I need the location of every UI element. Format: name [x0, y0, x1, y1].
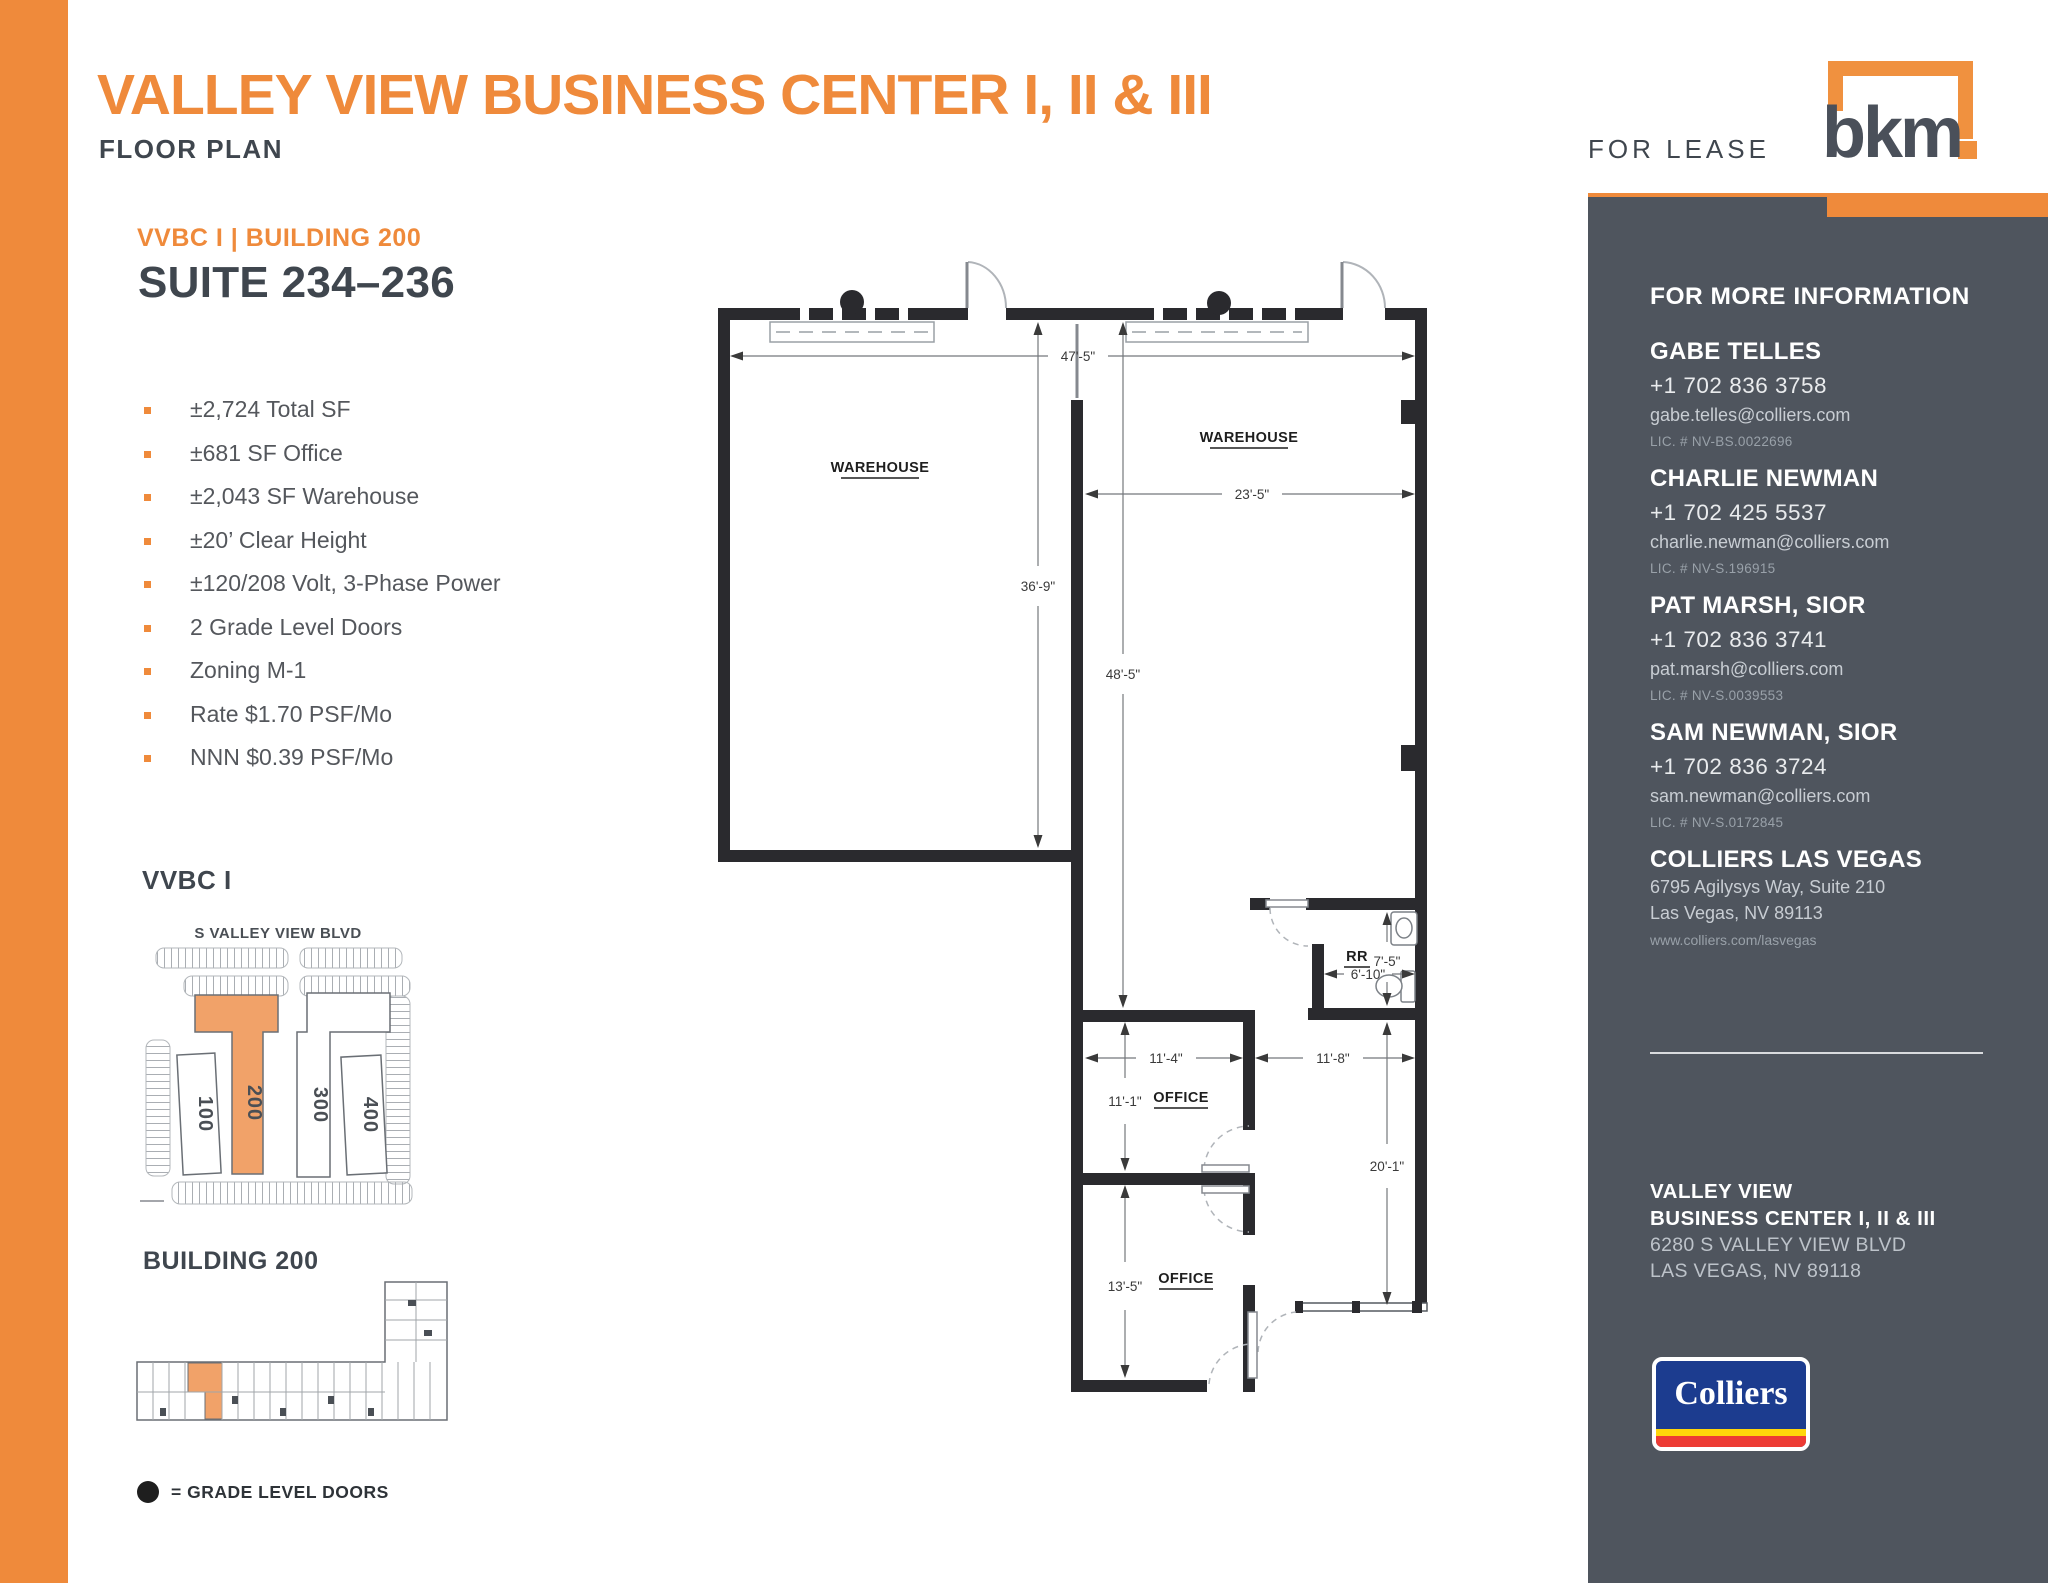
feature-item: 2 Grade Level Doors [140, 606, 501, 650]
contact-name: CHARLIE NEWMAN [1650, 464, 2002, 493]
building-label: VVBC I | BUILDING 200 [137, 224, 421, 253]
site-building-200-label: 200 [243, 1085, 265, 1121]
office-address-line: Las Vegas, NV 89113 [1650, 900, 2002, 926]
flyer-page: VALLEY VIEW BUSINESS CENTER I, II & III … [0, 0, 2048, 1583]
dim-left-depth: 36'-9" [1021, 579, 1056, 594]
contact-email: gabe.telles@colliers.com [1650, 403, 2002, 428]
feature-item: NNN $0.39 PSF/Mo [140, 736, 501, 780]
contact-email: charlie.newman@colliers.com [1650, 530, 2002, 555]
contact-name: SAM NEWMAN, SIOR [1650, 718, 2002, 747]
dim-office-top-width: 11'-4" [1149, 1051, 1183, 1066]
property-address-block: VALLEY VIEW BUSINESS CENTER I, II & III … [1650, 1178, 1936, 1284]
contact-card: PAT MARSH, SIOR +1 702 836 3741 pat.mars… [1650, 591, 2002, 705]
office-website: www.colliers.com/lasvegas [1650, 930, 2002, 950]
feature-item: ±120/208 Volt, 3-Phase Power [140, 562, 501, 606]
office-address-line: 6795 Agilysys Way, Suite 210 [1650, 874, 2002, 900]
contact-card: GABE TELLES +1 702 836 3758 gabe.telles@… [1650, 337, 2002, 451]
contact-card: CHARLIE NEWMAN +1 702 425 5537 charlie.n… [1650, 464, 2002, 578]
feature-item: ±681 SF Office [140, 432, 501, 476]
feature-item: Rate $1.70 PSF/Mo [140, 693, 501, 737]
page-title: VALLEY VIEW BUSINESS CENTER I, II & III [97, 62, 1212, 128]
room-label-warehouse-right: WAREHOUSE [1200, 430, 1299, 446]
dim-right-depth: 48'-5" [1106, 667, 1141, 682]
bkm-logo-text: bkm [1822, 93, 1961, 168]
site-building-100-label: 100 [194, 1096, 216, 1132]
contact-license: LIC. # NV-BS.0022696 [1650, 432, 2002, 451]
exterior-door-leaves [967, 262, 1342, 398]
contact-name: PAT MARSH, SIOR [1650, 591, 2002, 620]
contact-phone: +1 702 836 3724 [1650, 751, 2002, 782]
site-building-300-label: 300 [309, 1087, 331, 1123]
contact-phone: +1 702 836 3741 [1650, 624, 2002, 655]
contact-license: LIC. # NV-S.0039553 [1650, 686, 2002, 705]
contact-name: GABE TELLES [1650, 337, 2002, 366]
bkm-logo: bkm [1820, 53, 1980, 168]
sidebar-content: FOR MORE INFORMATION GABE TELLES +1 702 … [1650, 283, 2002, 963]
dim-right-width: 23'-5" [1235, 487, 1270, 502]
floor-plan-walls [718, 308, 1427, 1392]
feature-item: ±2,724 Total SF [140, 388, 501, 432]
contact-phone: +1 702 836 3758 [1650, 370, 2002, 401]
room-label-warehouse-left: WAREHOUSE [831, 460, 930, 476]
sidebar-divider [1650, 1052, 1983, 1054]
feature-item: ±20’ Clear Height [140, 519, 501, 563]
for-lease-label: FOR LEASE [1588, 134, 1770, 165]
office-name: COLLIERS LAS VEGAS [1650, 845, 2002, 874]
office-card: COLLIERS LAS VEGAS 6795 Agilysys Way, Su… [1650, 845, 2002, 950]
left-accent-bar [0, 0, 68, 1583]
info-sidebar: FOR MORE INFORMATION GABE TELLES +1 702 … [1588, 197, 2048, 1583]
suite-title: SUITE 234–236 [138, 258, 455, 308]
contact-phone: +1 702 425 5537 [1650, 497, 2002, 528]
contact-email: sam.newman@colliers.com [1650, 784, 2002, 809]
site-plan: S VALLEY VIEW BLVD 100 200 300 400 [120, 900, 460, 1220]
site-plan-heading: VVBC I [142, 865, 232, 896]
building-200-plan [120, 1270, 460, 1440]
property-name-line: VALLEY VIEW [1650, 1178, 1936, 1205]
storefront-glazing [1295, 1301, 1427, 1313]
dim-corridor-depth: 20'-1" [1370, 1159, 1405, 1174]
exterior-door-swings [968, 262, 1385, 308]
feature-item: ±2,043 SF Warehouse [140, 475, 501, 519]
colliers-logo-red-stripe [1656, 1436, 1806, 1447]
property-city: LAS VEGAS, NV 89118 [1650, 1258, 1936, 1284]
legend-text: = GRADE LEVEL DOORS [171, 1482, 389, 1503]
feature-item: Zoning M-1 [140, 649, 501, 693]
site-building-400-label: 400 [359, 1097, 381, 1133]
contact-email: pat.marsh@colliers.com [1650, 657, 2002, 682]
room-label-restroom: RR [1346, 949, 1368, 965]
dim-office-bottom-depth: 13'-5" [1108, 1279, 1143, 1294]
dim-office-top-depth: 11'-1" [1108, 1094, 1142, 1109]
colliers-logo: Colliers [1652, 1357, 1810, 1451]
colliers-logo-text: Colliers [1656, 1361, 1806, 1429]
colliers-logo-yellow-stripe [1656, 1429, 1806, 1436]
building-200-outline [137, 1282, 447, 1420]
room-label-office-bottom: OFFICE [1158, 1271, 1214, 1287]
sidebar-heading: FOR MORE INFORMATION [1650, 283, 2002, 311]
dim-corridor-width: 11'-8" [1316, 1051, 1350, 1066]
contact-card: SAM NEWMAN, SIOR +1 702 836 3724 sam.new… [1650, 718, 2002, 832]
feature-list: ±2,724 Total SF ±681 SF Office ±2,043 SF… [140, 388, 501, 780]
contact-license: LIC. # NV-S.196915 [1650, 559, 2002, 578]
contact-license: LIC. # NV-S.0172845 [1650, 813, 2002, 832]
property-name-line: BUSINESS CENTER I, II & III [1650, 1205, 1936, 1232]
sidebar-top-accent-block [1827, 197, 2048, 217]
legend: = GRADE LEVEL DOORS [137, 1481, 389, 1503]
page-subtitle: FLOOR PLAN [99, 134, 283, 165]
street-label: S VALLEY VIEW BLVD [194, 925, 361, 942]
dim-top-width: 47'-5" [1061, 349, 1096, 364]
grade-level-door-dot-icon [137, 1481, 159, 1503]
property-street: 6280 S VALLEY VIEW BLVD [1650, 1232, 1936, 1258]
floor-plan: 47'-5" 36'-9" 23'-5" 48'-5" 7'-5" 6'-10"… [700, 230, 1460, 1430]
dim-rr-width: 6'-10" [1351, 967, 1386, 982]
room-label-office-top: OFFICE [1153, 1090, 1209, 1106]
